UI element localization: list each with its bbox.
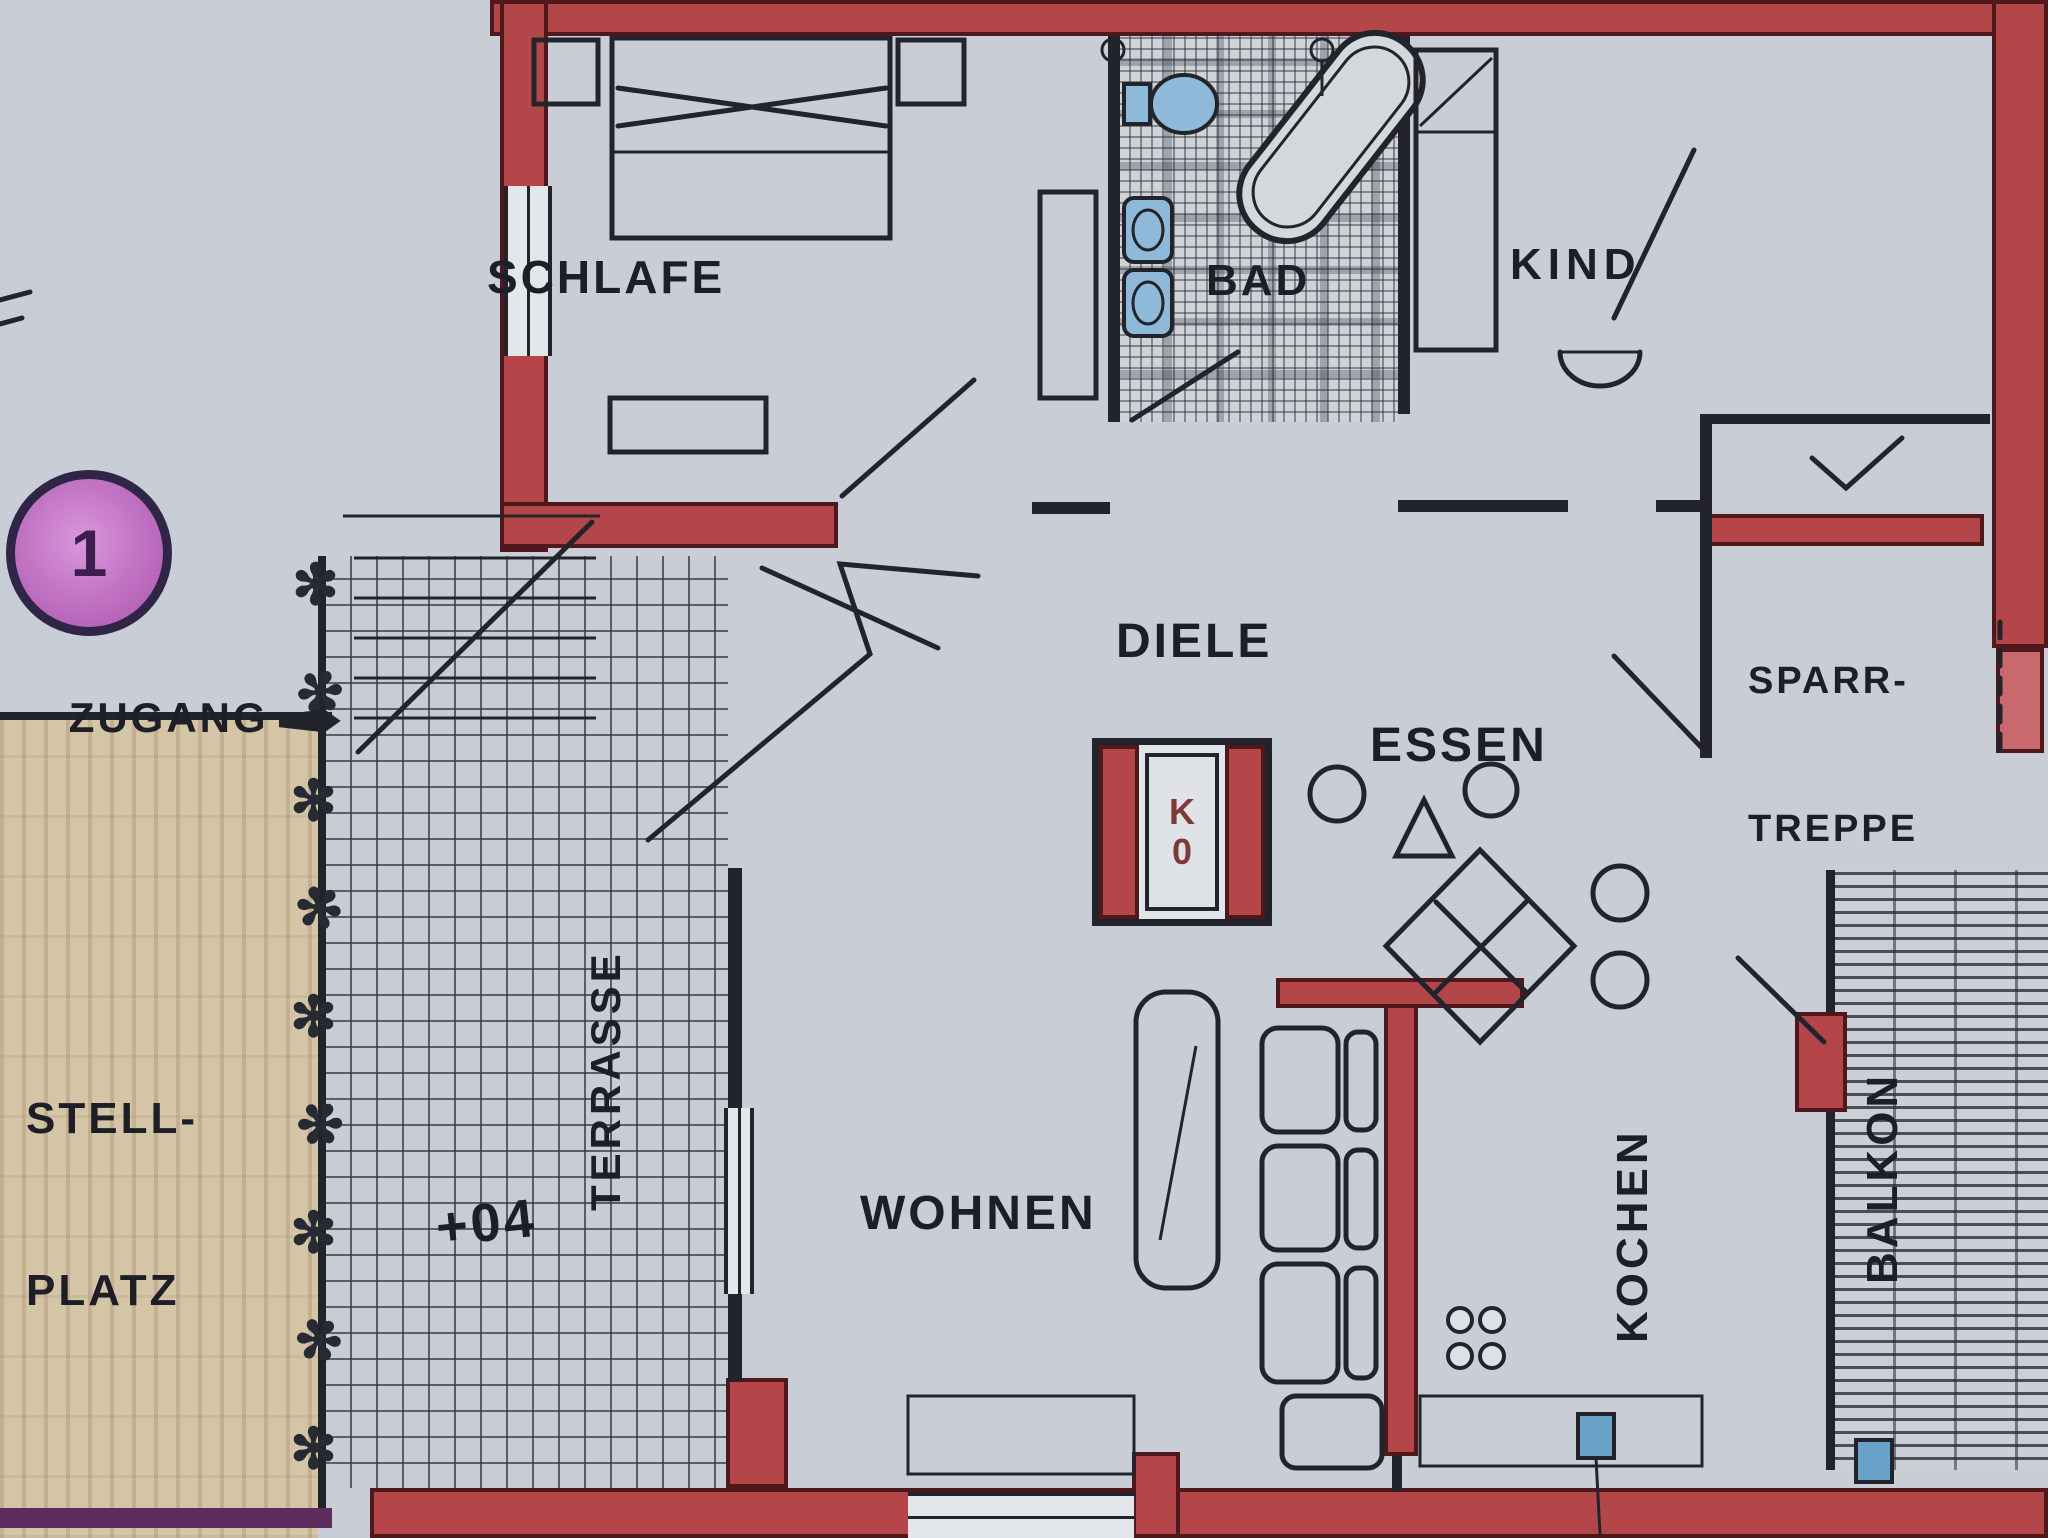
chair <box>1310 767 1364 821</box>
room-label-kind: KIND <box>1510 240 1642 290</box>
kitchen-counter <box>1420 1396 1702 1466</box>
stove-burner <box>1448 1344 1472 1368</box>
plant-icon: ✻ <box>290 1200 337 1266</box>
nightstand <box>898 40 964 104</box>
sofa-seat <box>1262 1264 1338 1382</box>
stove-burner <box>1448 1308 1472 1332</box>
balcony-drain <box>1856 1440 1892 1482</box>
stair-mark <box>1812 438 1902 488</box>
sofa-seat <box>1262 1146 1338 1250</box>
access-arrow-icon <box>279 708 341 734</box>
room-label-diele: DIELE <box>1116 614 1272 669</box>
door-swing <box>842 380 974 496</box>
sofa-back <box>1346 1150 1376 1248</box>
stove-burner <box>1480 1344 1504 1368</box>
room-label-terrasse: TERRASSE <box>582 866 630 1296</box>
sofa-seat <box>1282 1396 1382 1468</box>
sofa-seat <box>1262 1028 1338 1132</box>
door-swing <box>1132 352 1238 420</box>
edge-tick <box>0 292 30 300</box>
room-label-essen: ESSEN <box>1370 718 1548 773</box>
sparrtreppe-line2: TREPPE <box>1748 805 1918 854</box>
sofa-back <box>1346 1032 1376 1130</box>
room-label-kochen: KOCHEN <box>1608 1086 1658 1386</box>
door-pivot <box>1102 39 1124 61</box>
stellplatz-line2: PLATZ <box>26 1262 198 1319</box>
bathtub <box>1221 14 1442 259</box>
room-label-stellplatz: STELL- PLATZ <box>26 976 198 1434</box>
chair <box>1396 800 1452 856</box>
unit-number: 1 <box>71 515 108 591</box>
stove-burner <box>1480 1308 1504 1332</box>
stellplatz-line1: STELL- <box>26 1090 198 1147</box>
bench <box>610 398 766 452</box>
entrance-door-swing <box>762 568 938 648</box>
double-bed <box>612 38 890 238</box>
cabinet <box>1136 992 1218 1288</box>
level-marker: +04 <box>433 1187 540 1259</box>
nightstand <box>534 40 598 104</box>
room-label-wohnen: WOHNEN <box>860 1186 1097 1241</box>
plant-icon: ✻ <box>290 1416 337 1482</box>
kitchen-sink <box>1578 1414 1614 1458</box>
door-swing <box>1614 150 1694 318</box>
room-label-sparrtreppe: SPARR- TREPPE <box>1748 558 1918 953</box>
pillow-line <box>1420 58 1492 126</box>
washbasin <box>1560 352 1640 386</box>
sofa-back <box>1346 1268 1376 1378</box>
chair <box>1593 953 1647 1007</box>
sink <box>1124 198 1172 262</box>
room-label-bad: BAD <box>1206 256 1310 306</box>
hall-divider-zigzag <box>648 564 978 840</box>
plant-icon: ✻ <box>290 984 337 1050</box>
room-label-balkon: BALKON <box>1858 1008 1908 1348</box>
door-pivot <box>1311 39 1333 61</box>
wardrobe <box>1040 192 1096 398</box>
zugang-label: ZUGANG <box>10 646 341 790</box>
sparrtreppe-line1: SPARR- <box>1748 657 1918 706</box>
edge-tick <box>0 318 22 324</box>
door-swing <box>1614 656 1702 748</box>
chair <box>1593 866 1647 920</box>
unit-number-badge: 1 <box>6 470 172 636</box>
cabinet-line <box>1160 1046 1196 1240</box>
zugang-text: ZUGANG <box>69 694 269 741</box>
drain-line <box>1596 1458 1600 1534</box>
window-bench <box>908 1396 1134 1474</box>
floor-plan: K 0 <box>0 0 2048 1538</box>
child-bed <box>1416 50 1496 350</box>
balcony-door-swing <box>1738 958 1824 1042</box>
sink <box>1124 270 1172 336</box>
room-label-schlafe: SCHLAFE <box>487 250 725 304</box>
plant-icon: ✻ <box>292 552 339 618</box>
toilet <box>1151 75 1217 133</box>
toilet-tank <box>1124 84 1150 124</box>
